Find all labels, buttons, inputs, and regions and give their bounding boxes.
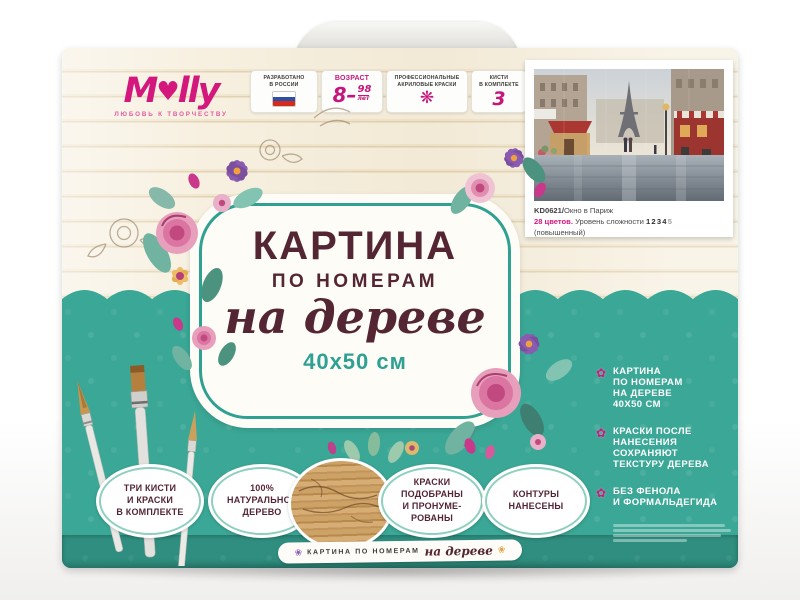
feature-oval-brushes: ТРИ КИСТИ И КРАСКИ В КОМПЛЕКТЕ <box>96 464 204 538</box>
ribbon-flower-icon: ❀ <box>498 545 506 556</box>
heart-icon: ♥ <box>156 77 177 107</box>
brush-count: 3 <box>476 90 522 109</box>
list-item: ✿ КРАСКИ ПОСЛЕ НАНЕСЕНИЯ СОХРАНЯЮТ ТЕКСТ… <box>596 426 738 470</box>
product-box: M♥lly ЛЮБОВЬ К ТВОРЧЕСТВУ РАЗРАБОТАНО В … <box>62 48 738 568</box>
molly-logo-text: M♥lly <box>96 74 246 109</box>
product-photo-card: KD0621/Окно в Париж 28 цветов. Уровень с… <box>525 60 733 237</box>
feature-bullet-list: ✿ КАРТИНА ПО НОМЕРАМ НА ДЕРЕВЕ 40Х50 СМ … <box>596 366 738 544</box>
badge-title: КИСТИ В КОМПЛЕКТЕ <box>476 75 522 88</box>
painting-caption: KD0621/Окно в Париж 28 цветов. Уровень с… <box>534 205 724 238</box>
badge-acrylic-paints: ПРОФЕССИОНАЛЬНЫЕ АКРИЛОВЫЕ КРАСКИ ❋ <box>386 70 468 113</box>
feature-oval-contours: КОНТУРЫ НАНЕСЕНЫ <box>482 464 590 538</box>
plaque-title-line2: ПО НОМЕРАМ <box>190 272 520 291</box>
badge-made-in-russia: РАЗРАБОТАНО В РОССИИ <box>250 70 318 113</box>
painting-title: KD0621/Окно в Париж <box>534 205 724 216</box>
difficulty-scale: 1234 <box>646 217 668 226</box>
flower-bullet-icon: ✿ <box>596 486 613 508</box>
plaque-title-line1: КАРТИНА <box>190 226 520 266</box>
badge-title: РАЗРАБОТАНО В РОССИИ <box>255 75 313 88</box>
main-title-plaque: КАРТИНА ПО НОМЕРАМ на дереве 40х50 см <box>190 194 520 428</box>
molly-logo: M♥lly ЛЮБОВЬ К ТВОРЧЕСТВУ <box>96 74 246 118</box>
paris-painting <box>534 69 724 201</box>
logo-tagline: ЛЮБОВЬ К ТВОРЧЕСТВУ <box>96 111 246 118</box>
age-range: 8– 98лет <box>326 85 378 105</box>
badge-title: ПРОФЕССИОНАЛЬНЫЕ АКРИЛОВЫЕ КРАСКИ <box>391 75 463 88</box>
flower-bullet-icon: ✿ <box>596 426 613 470</box>
badge-age: ВОЗРАСТ 8– 98лет <box>321 70 383 113</box>
page-background: M♥lly ЛЮБОВЬ К ТВОРЧЕСТВУ РАЗРАБОТАНО В … <box>0 0 800 600</box>
ribbon-flower-icon: ❀ <box>295 547 303 558</box>
painting-specs: 28 цветов. Уровень сложности 12345 (повы… <box>534 216 724 238</box>
wood-sketch-lines <box>291 461 385 541</box>
box-drop-shadow <box>86 562 714 582</box>
feature-oval-numbered-paints: КРАСКИ ПОДОБРАНЫ И ПРОНУМЕ- РОВАНЫ <box>378 464 486 538</box>
ribbon-caps-text: КАРТИНА ПО НОМЕРАМ <box>307 548 420 557</box>
list-item: ✿ КАРТИНА ПО НОМЕРАМ НА ДЕРЕВЕ 40Х50 СМ <box>596 366 738 410</box>
russia-flag-icon <box>272 91 296 107</box>
paint-splat-icon: ❋ <box>391 89 463 108</box>
ribbon-script-text: на дереве <box>424 543 492 558</box>
flower-bullet-icon: ✿ <box>596 366 613 410</box>
plaque-title-script: на дереве <box>190 293 520 341</box>
plaque-size: 40х50 см <box>190 349 520 375</box>
list-item: ✿ БЕЗ ФЕНОЛА И ФОРМАЛЬДЕГИДА <box>596 486 738 508</box>
ribbon-banner: ❀ КАРТИНА ПО НОМЕРАМ на дереве ❀ <box>278 539 522 563</box>
fine-print-text <box>613 524 738 542</box>
badge-brushes-included: КИСТИ В КОМПЛЕКТЕ 3 <box>471 70 527 113</box>
